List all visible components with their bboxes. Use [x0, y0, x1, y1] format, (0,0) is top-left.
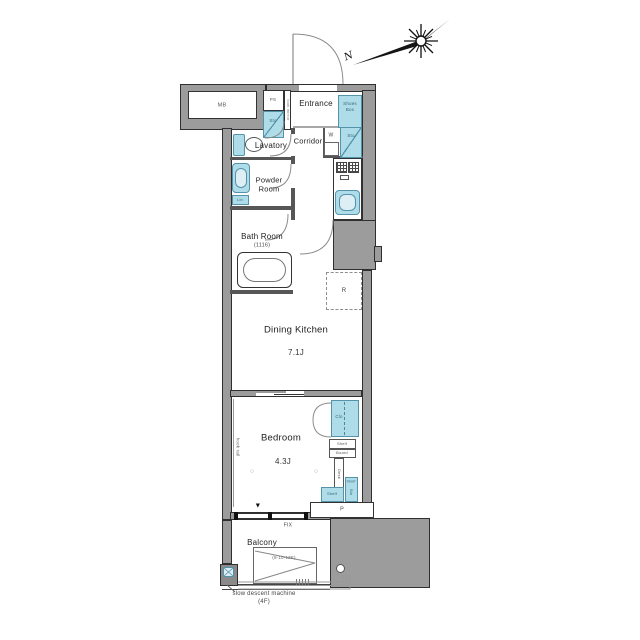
wall-balcony-left: [222, 520, 232, 564]
label-north: N: [343, 51, 355, 64]
window-jamb-left: [234, 512, 238, 520]
label-washer: W: [329, 134, 334, 139]
label-corridor: Corridor: [294, 137, 323, 145]
label-hatch-id: (8-10-12E): [272, 556, 296, 561]
entrance-door-opening: [299, 85, 337, 91]
balcony-drain-grate: [296, 579, 310, 585]
label-desk: Desk: [337, 469, 341, 479]
partition-bath-dk: [230, 290, 293, 294]
wall-right-upper: [362, 90, 376, 222]
label-shelf-bottom: Shelf: [327, 492, 337, 496]
partition-corridor-b: [291, 156, 295, 164]
line-overlay: [0, 0, 640, 640]
vent-marker: ▼: [254, 503, 261, 510]
wall-right-bump: [374, 246, 382, 262]
window-jamb-center: [268, 512, 272, 520]
label-entrance: Entrance: [299, 100, 333, 108]
wall-right-lower: [362, 270, 372, 518]
partition-powder-bath: [230, 206, 293, 210]
hall-storage-box: [263, 111, 284, 138]
label-board: Board: [336, 451, 348, 455]
window-jamb-right: [304, 512, 308, 520]
stove-burner-left-icon: [336, 162, 347, 173]
label-mirror: look mirror: [286, 99, 290, 120]
partition-corridor-c: [291, 188, 295, 220]
label-shelf-side: Shelf: [347, 480, 356, 484]
label-corridor-storage: Sto: [347, 134, 354, 139]
toilet-tank-icon: [233, 134, 245, 156]
closet-door-arc-bottom: [313, 420, 331, 437]
bathtub-inner: [243, 258, 286, 282]
closet-hanger-line: [344, 402, 345, 435]
label-note-1: slow descent machine: [232, 591, 295, 597]
label-bedroom-size: 4.3J: [275, 458, 291, 466]
label-refrigerator: R: [342, 288, 347, 294]
stove-burner-right-icon: [348, 162, 359, 173]
stove-grill-icon: [340, 175, 349, 180]
corridor-storage-box: [340, 127, 362, 158]
label-hook-rail: hook rail: [235, 438, 240, 457]
label-bath: Bath Room: [241, 233, 283, 241]
compass-needle: [353, 19, 450, 65]
bedroom-sliding-door-opening: [256, 391, 304, 396]
partition-lavatory-powder: [230, 157, 293, 160]
wall-left: [222, 128, 232, 520]
ceiling-light-marker-left: ◇: [250, 470, 254, 475]
label-shelf-top: Shelf: [337, 442, 347, 446]
compass-hub: [416, 36, 426, 46]
wall-right-mid-block: [333, 220, 376, 270]
drain-pipe-circle: [336, 564, 345, 573]
label-powder-1: Powder: [256, 176, 283, 184]
balcony-window: [236, 513, 308, 519]
powder-sink-basin: [235, 168, 247, 188]
label-dining-kitchen: Dining Kitchen: [264, 325, 328, 335]
label-shoes-box-1: Shoes: [343, 102, 357, 107]
partition-corridor-a: [291, 128, 295, 134]
entrance-door-arc: [293, 34, 343, 84]
ceiling-light-marker-right: ◇: [314, 470, 318, 475]
label-fix-window: FIX: [284, 524, 292, 529]
kitchen-sink-basin: [339, 194, 356, 211]
label-mb: MB: [218, 103, 227, 109]
label-shoes-box-2: Box: [346, 108, 354, 113]
wall-balcony-partition: [330, 518, 430, 588]
label-ps: PS: [270, 98, 276, 103]
balcony-railing: [222, 584, 330, 590]
label-closet: Clo: [335, 415, 342, 420]
label-pipe-space: P: [340, 507, 344, 513]
label-note-2: (4F): [258, 599, 270, 605]
label-hall-storage: Sto: [269, 119, 276, 124]
hatch-anchor-inner: [223, 567, 234, 577]
label-dining-kitchen-size: 7.1J: [288, 349, 304, 357]
label-bedroom: Bedroom: [261, 433, 301, 443]
label-linen: Lin: [237, 198, 243, 202]
compass-icon: [353, 19, 450, 65]
label-powder-2: Room: [259, 185, 280, 193]
closet-door-arc-top: [313, 403, 331, 420]
washer-pan: [324, 142, 339, 156]
label-balcony: Balcony: [247, 539, 277, 547]
label-bedroom-storage: Sto: [349, 489, 353, 496]
corridor-dk-door-arc: [300, 220, 333, 254]
label-lavatory: Lavatory: [255, 142, 287, 150]
label-bath-size: (1116): [254, 243, 270, 249]
entrance-step-line: [293, 126, 338, 128]
